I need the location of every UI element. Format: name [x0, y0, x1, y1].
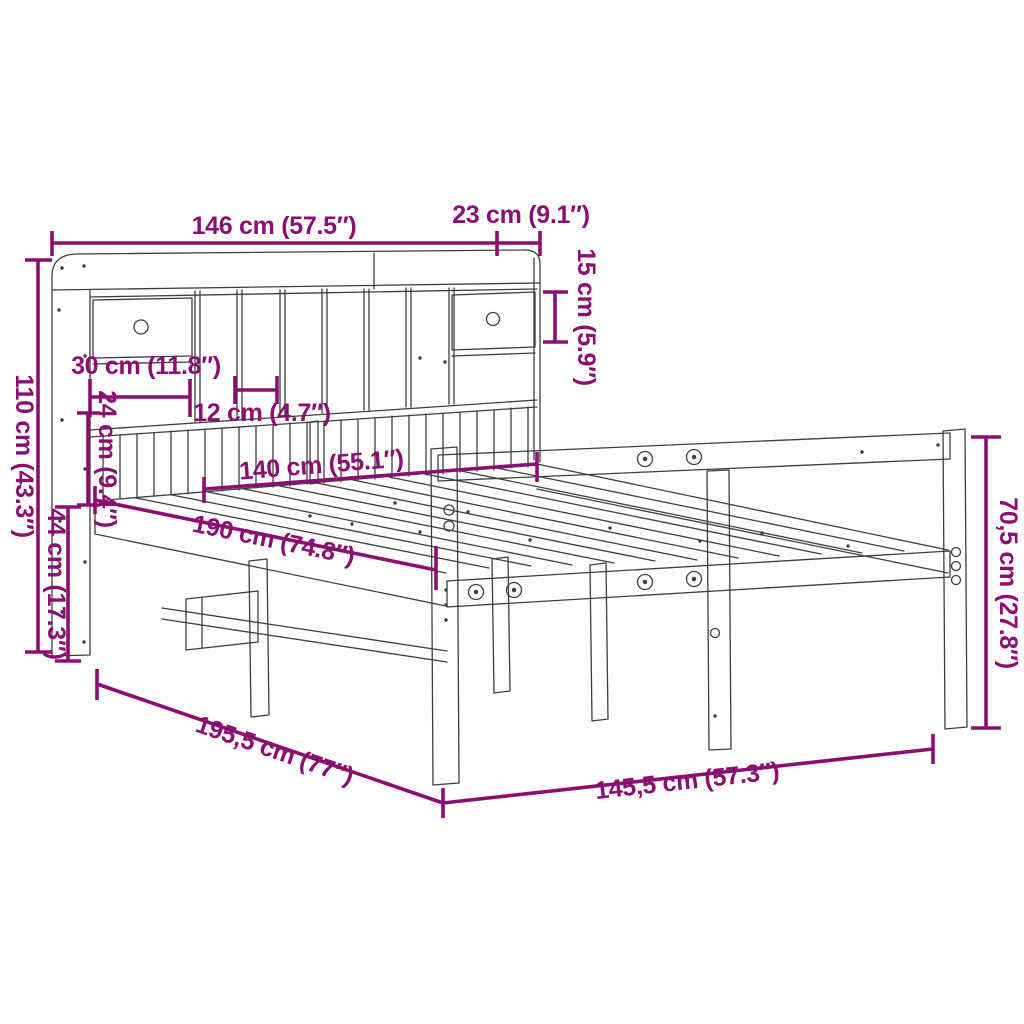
dimension-footboard-height: 70,5 cm (27.8″) [971, 437, 1022, 728]
footboard [431, 429, 967, 785]
dimension-label-platform-height: 44 cm (17.3″) [42, 508, 70, 659]
dimension-cubby-width: 12 cm (4.7″) [193, 376, 331, 427]
bed-line-drawing [52, 250, 967, 785]
leg-near-mid [249, 559, 269, 717]
dimension-label-headboard-width: 146 cm (57.5″) [192, 212, 357, 240]
dimension-platform-height: 44 cm (17.3″) [42, 507, 81, 661]
dimension-mattress-length: 190 cm (74.8″) [95, 486, 436, 590]
right-drawer-knob [487, 313, 500, 326]
bed-diagram-svg: 146 cm (57.5″) 23 cm (9.1″) 15 cm (5.9″)… [0, 0, 1024, 1024]
slat-clip-dots [310, 503, 848, 546]
left-drawer-knob [134, 320, 148, 334]
dimension-slat-panel-height: 24 cm (9.4″) [77, 390, 121, 528]
product-dimension-diagram: 146 cm (57.5″) 23 cm (9.1″) 15 cm (5.9″)… [0, 0, 1024, 1024]
dimension-label-top-shelf-height: 15 cm (5.9″) [572, 248, 600, 386]
footboard-near-post [431, 447, 459, 785]
leg-center-b [590, 563, 608, 721]
dimension-label-footboard-height: 70,5 cm (27.8″) [994, 497, 1022, 668]
footboard-far-post [943, 429, 967, 729]
footboard-lower-rail [447, 551, 950, 607]
dimension-top-shelf-height: 15 cm (5.9″) [543, 248, 600, 386]
dimension-label-shelf-side-depth: 23 cm (9.1″) [452, 201, 590, 229]
dimension-label-mattress-length: 190 cm (74.8″) [190, 510, 357, 571]
dimension-label-frame-length: 195,5 cm (77″) [192, 710, 357, 790]
dimension-shelf-side-depth: 23 cm (9.1″) [452, 201, 590, 256]
dimension-label-cubby-width: 12 cm (4.7″) [193, 399, 331, 427]
dimension-frame-width: 145,5 cm (57.3″) [443, 734, 933, 818]
right-drawer [452, 292, 535, 356]
dimension-annotations: 146 cm (57.5″) 23 cm (9.1″) 15 cm (5.9″)… [10, 201, 1022, 818]
dimension-label-drawer-width: 30 cm (11.8″) [71, 352, 221, 380]
dimension-headboard-width: 146 cm (57.5″) [52, 212, 497, 256]
dimension-label-headboard-height: 110 cm (43.3″) [10, 374, 38, 537]
legs-and-stretchers [162, 557, 608, 721]
near-stretcher-rail [162, 608, 447, 662]
dimension-label-frame-width: 145,5 cm (57.3″) [594, 757, 781, 805]
dimension-label-slat-panel-height: 24 cm (9.4″) [93, 390, 121, 528]
footboard-screw-dots [446, 445, 938, 716]
dimension-frame-length: 195,5 cm (77″) [97, 669, 443, 803]
